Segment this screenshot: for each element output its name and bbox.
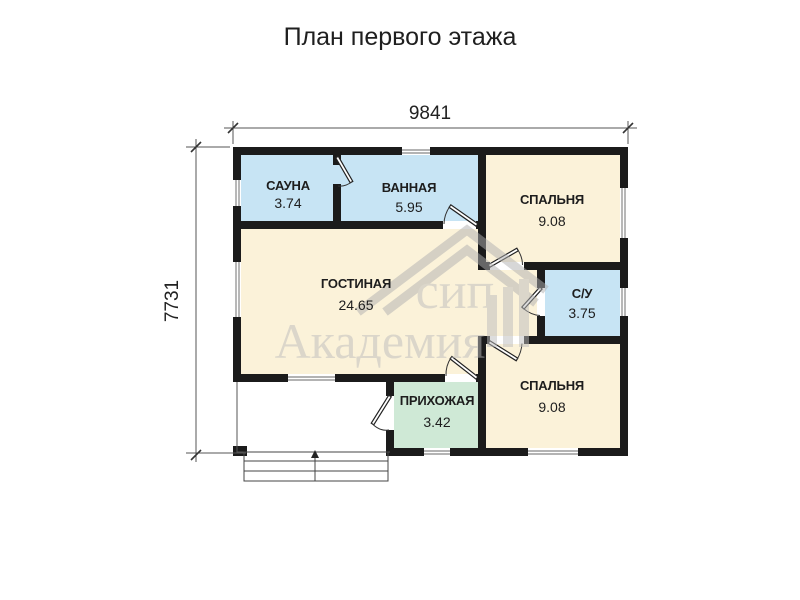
room-name-bedroom2: СПАЛЬНЯ bbox=[520, 378, 584, 393]
room-name-sauna: САУНА bbox=[266, 178, 311, 193]
porch bbox=[237, 382, 390, 481]
porch-steps bbox=[244, 450, 388, 481]
floor-plan-canvas: План первого этажа bbox=[0, 0, 800, 600]
room-bedroom2-fill bbox=[486, 344, 620, 448]
room-name-hallway: ПРИХОЖАЯ bbox=[400, 393, 475, 408]
room-area-bathroom: 5.95 bbox=[395, 199, 422, 215]
door-entrance bbox=[371, 395, 391, 430]
room-area-hallway: 3.42 bbox=[423, 414, 450, 430]
room-area-sauna: 3.74 bbox=[274, 195, 301, 211]
window-bottom-bedroom2 bbox=[528, 448, 578, 456]
room-area-bedroom2: 9.08 bbox=[538, 399, 565, 415]
entrance-arrow-icon bbox=[311, 450, 319, 458]
dimension-width-label: 9841 bbox=[409, 103, 451, 124]
room-area-wc: 3.75 bbox=[568, 305, 595, 321]
room-bedroom1-fill bbox=[486, 155, 620, 262]
window-bottom-hallway bbox=[424, 448, 450, 456]
window-left-living bbox=[233, 262, 241, 317]
floor-plan-page: План первого этажа bbox=[0, 0, 800, 600]
window-left-sauna bbox=[233, 180, 241, 206]
watermark-text-top: сип bbox=[416, 263, 495, 320]
dimension-height-label: 7731 bbox=[162, 280, 183, 322]
room-area-living: 24.65 bbox=[338, 297, 373, 313]
room-name-wc: С/У bbox=[572, 286, 594, 301]
window-top-bathroom bbox=[402, 147, 430, 155]
room-name-bathroom: ВАННАЯ bbox=[382, 180, 436, 195]
room-name-living: ГОСТИНАЯ bbox=[321, 276, 391, 291]
window-right-wc bbox=[620, 288, 628, 316]
window-right-bedroom1 bbox=[620, 188, 628, 238]
watermark-text-bottom: Академия bbox=[275, 313, 486, 369]
room-area-bedroom1: 9.08 bbox=[538, 213, 565, 229]
window-bottom-living bbox=[288, 374, 335, 382]
room-name-bedroom1: СПАЛЬНЯ bbox=[520, 192, 584, 207]
page-title: План первого этажа bbox=[284, 23, 517, 51]
room-wc-fill bbox=[545, 270, 620, 336]
dimension-top: 9841 bbox=[224, 103, 637, 144]
